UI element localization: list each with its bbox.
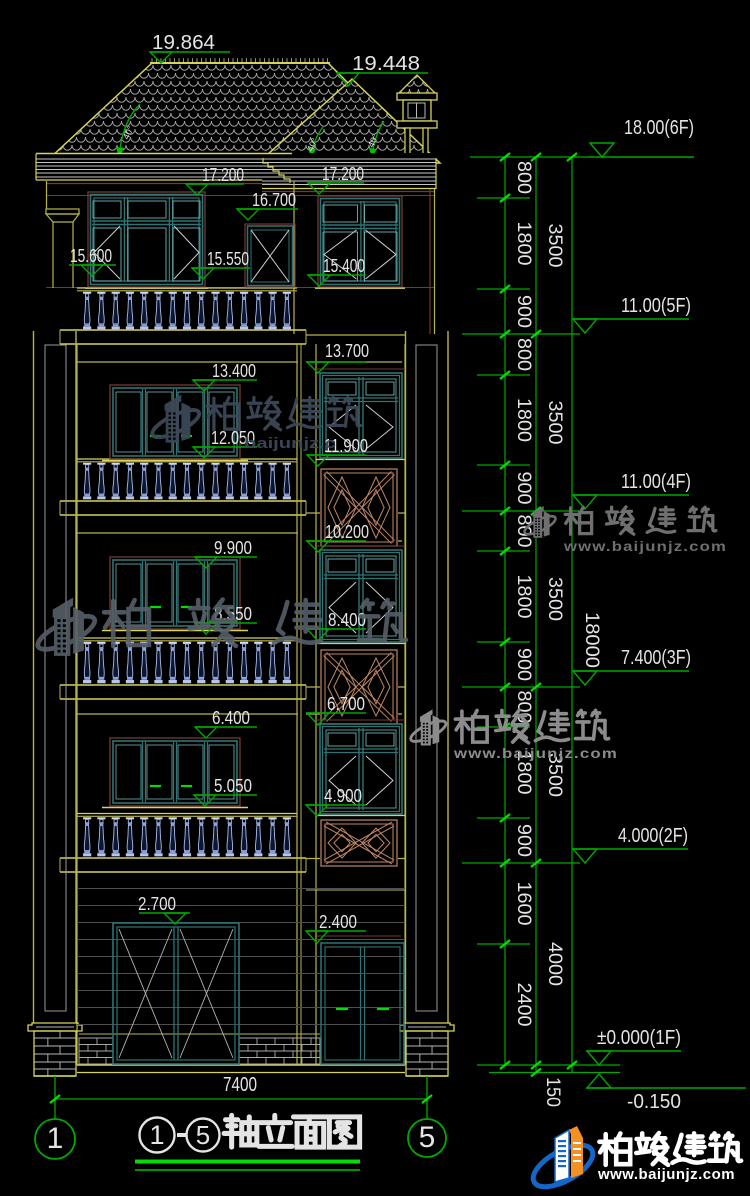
svg-text:5.050: 5.050 [214,776,252,796]
svg-text:3500: 3500 [544,401,565,445]
svg-text:±0.000(1F): ±0.000(1F) [597,1027,681,1049]
svg-text:6.700: 6.700 [327,694,365,714]
svg-text:800: 800 [513,161,534,194]
svg-text:18.00(6F): 18.00(6F) [624,117,694,139]
svg-text:15.550: 15.550 [207,249,249,269]
svg-text:1: 1 [149,1120,164,1150]
svg-text:-0.150: -0.150 [627,1091,681,1113]
svg-text:9.900: 9.900 [214,538,252,558]
svg-text:900: 900 [513,648,534,681]
svg-text:1800: 1800 [513,398,534,442]
svg-text:2.700: 2.700 [138,894,176,914]
svg-text:15.400: 15.400 [323,256,365,276]
svg-text:19.448: 19.448 [352,53,420,75]
svg-text:5: 5 [196,1120,210,1150]
svg-text:5: 5 [419,1121,436,1154]
svg-text:17.200: 17.200 [322,164,364,184]
svg-text:2.400: 2.400 [319,912,357,932]
svg-text:3500: 3500 [544,224,565,268]
svg-text:www.baijunjz.com: www.baijunjz.com [453,745,618,761]
svg-text:6.400: 6.400 [212,708,250,728]
svg-text:4000: 4000 [544,942,565,986]
svg-text:11.00(5F): 11.00(5F) [621,295,691,317]
svg-text:900: 900 [513,295,534,328]
svg-text:900: 900 [513,472,534,505]
svg-text:baijunjz.c: baijunjz.c [244,435,336,452]
svg-text:10.200: 10.200 [325,522,369,542]
svg-text:7400: 7400 [223,1074,257,1096]
svg-text:900: 900 [513,824,534,857]
svg-text:18000: 18000 [581,612,602,668]
svg-text:2400: 2400 [513,983,534,1027]
svg-text:1800: 1800 [513,575,534,619]
svg-text:www.baijunjz.com: www.baijunjz.com [563,538,727,554]
svg-text:1600: 1600 [513,882,534,926]
svg-text:13.400: 13.400 [212,361,256,381]
svg-text:15.600: 15.600 [70,246,112,266]
svg-text:150: 150 [542,1077,563,1107]
svg-text:11.00(4F): 11.00(4F) [621,471,691,493]
svg-text:1800: 1800 [513,222,534,266]
svg-text:800: 800 [513,338,534,371]
svg-text:17.200: 17.200 [202,165,244,185]
svg-text:8.400: 8.400 [328,610,366,630]
svg-text:1: 1 [47,1122,64,1155]
svg-text:19.864: 19.864 [152,32,215,54]
svg-text:16.700: 16.700 [252,190,296,210]
svg-text:4.900: 4.900 [324,786,362,806]
svg-text:4.000(2F): 4.000(2F) [618,825,688,847]
svg-text:3500: 3500 [544,577,565,621]
svg-text:7.400(3F): 7.400(3F) [621,647,691,669]
svg-text:13.700: 13.700 [325,341,369,361]
svg-text:www.baijunjz.com: www.baijunjz.com [597,1166,735,1183]
